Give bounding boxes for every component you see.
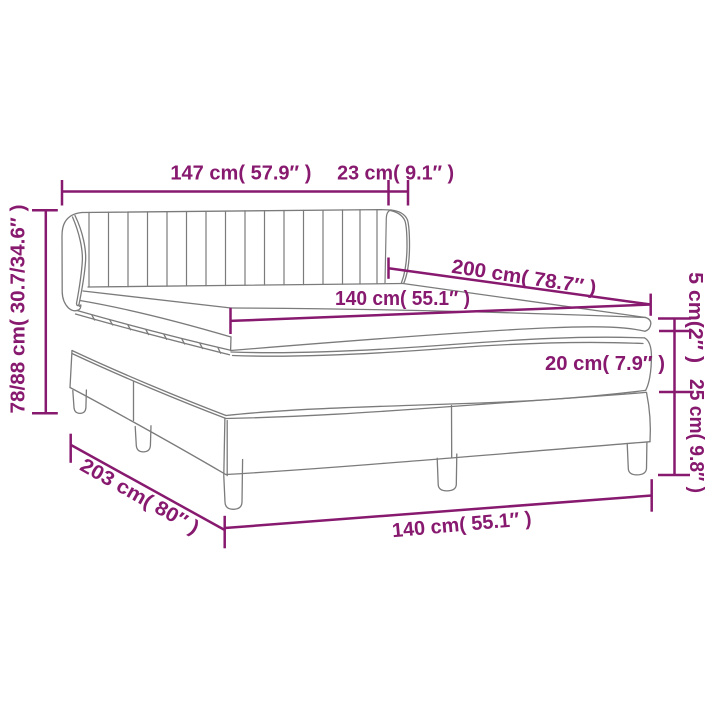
svg-text:78/88 cm( 30.7/34.6″ ): 78/88 cm( 30.7/34.6″ ) bbox=[8, 205, 30, 414]
svg-text:25 cm( 9.8″ ): 25 cm( 9.8″ ) bbox=[685, 379, 707, 493]
svg-text:147 cm( 57.9″ ): 147 cm( 57.9″ ) bbox=[170, 163, 311, 185]
svg-text:140 cm( 55.1″ ): 140 cm( 55.1″ ) bbox=[335, 288, 470, 310]
svg-text:20 cm( 7.9″ ): 20 cm( 7.9″ ) bbox=[545, 353, 665, 375]
svg-text:23 cm( 9.1″ ): 23 cm( 9.1″ ) bbox=[337, 163, 454, 185]
svg-text:5 cm(2″ ): 5 cm(2″ ) bbox=[684, 272, 706, 363]
